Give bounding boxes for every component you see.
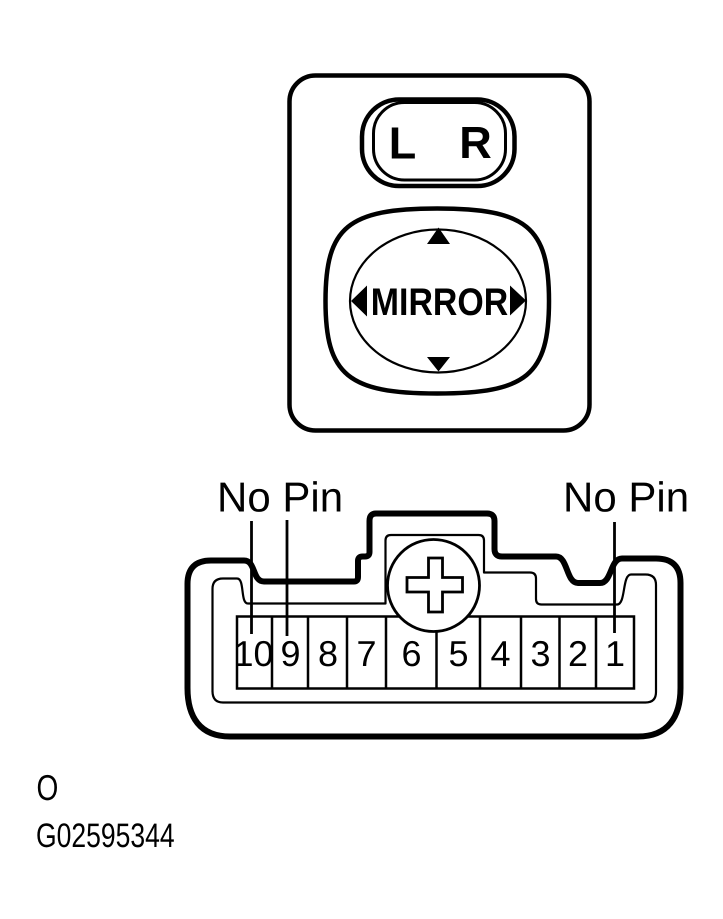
svg-text:R: R [459, 117, 492, 168]
svg-text:4: 4 [490, 633, 510, 674]
svg-text:L: L [389, 118, 417, 169]
svg-text:8: 8 [318, 633, 338, 674]
svg-text:6: 6 [401, 633, 421, 674]
svg-text:10: 10 [233, 633, 273, 674]
svg-text:9: 9 [280, 633, 300, 674]
svg-text:No Pin: No Pin [563, 474, 689, 521]
svg-text:5: 5 [448, 633, 468, 674]
svg-text:1: 1 [605, 633, 625, 674]
svg-text:2: 2 [568, 633, 588, 674]
svg-text:O: O [37, 767, 59, 808]
svg-text:G02595344: G02595344 [36, 817, 175, 855]
svg-text:MIRROR: MIRROR [371, 281, 509, 324]
svg-text:7: 7 [356, 633, 376, 674]
svg-text:3: 3 [530, 633, 550, 674]
svg-text:No Pin: No Pin [217, 474, 343, 521]
